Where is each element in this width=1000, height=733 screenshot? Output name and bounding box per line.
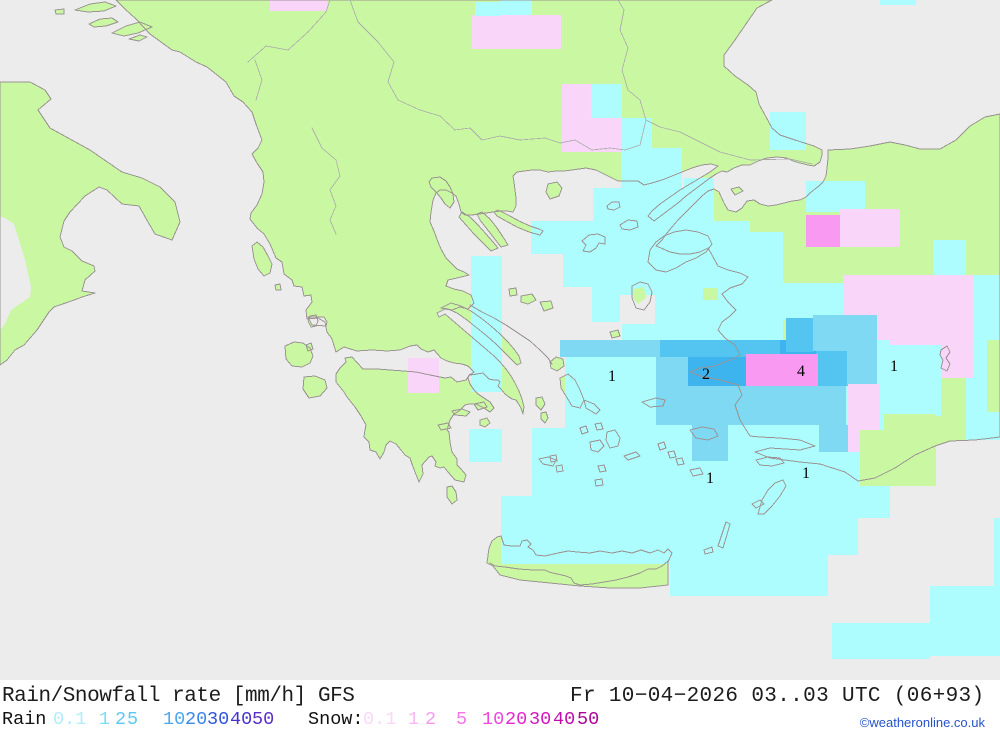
svg-text:1: 1 xyxy=(890,358,898,375)
svg-text:1: 1 xyxy=(706,470,714,487)
svg-text:4: 4 xyxy=(797,363,805,380)
svg-text:1: 1 xyxy=(608,368,616,385)
svg-text:1: 1 xyxy=(802,465,810,482)
svg-text:2: 2 xyxy=(702,366,710,383)
